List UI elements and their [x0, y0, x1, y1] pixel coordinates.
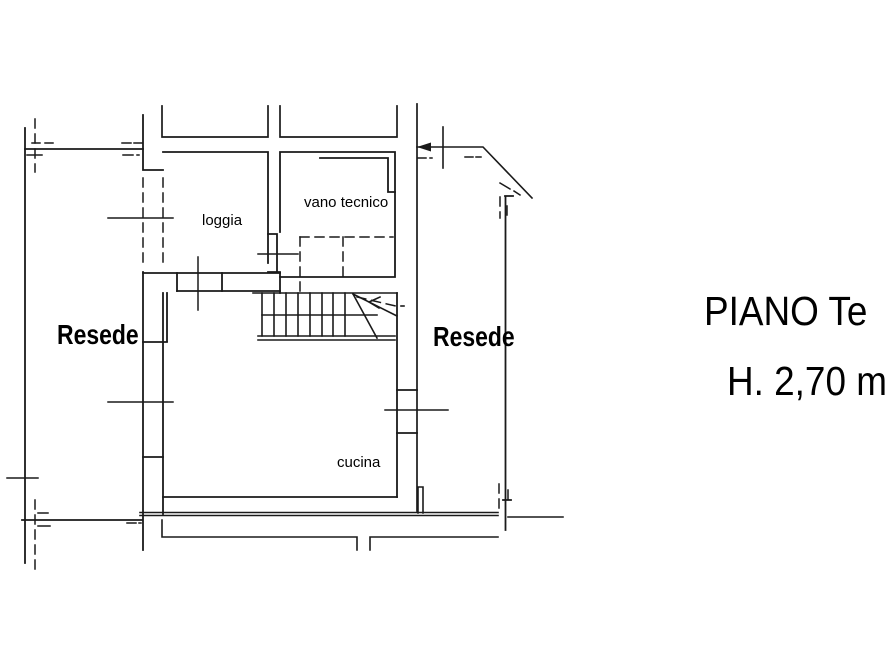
stairs: [253, 293, 404, 340]
plan-height-note: H. 2,70 m: [727, 361, 887, 402]
vano-tecnico-label: vano tecnico: [304, 195, 388, 210]
plan-title: PIANO Te: [704, 291, 867, 332]
arrowhead-icon: [417, 143, 431, 152]
cucina-label: cucina: [337, 455, 380, 470]
right-boundary-wall: [503, 196, 513, 530]
left-double-wall: [143, 272, 167, 550]
resede-right-label: Resede: [433, 323, 515, 351]
loggia-label: loggia: [202, 213, 242, 228]
floor-plan-page: loggia vano tecnico cucina Resede Resede…: [0, 0, 893, 670]
resede-left-label: Resede: [57, 321, 139, 349]
top-right-diagonal-wall: [417, 127, 532, 198]
vano-tecnico-walls: [268, 152, 395, 277]
